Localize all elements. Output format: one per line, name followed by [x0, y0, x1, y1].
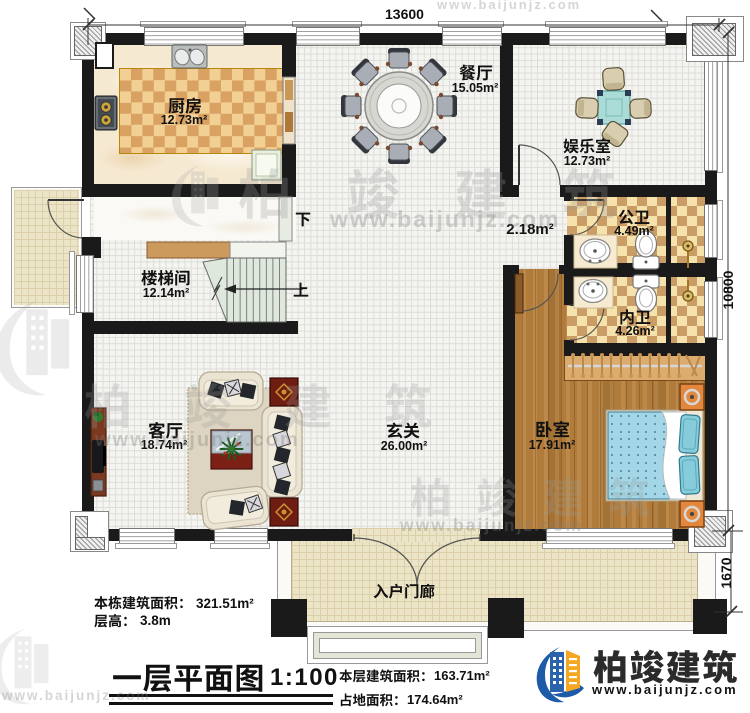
svg-text:1670: 1670 — [718, 557, 734, 588]
svg-text:10800: 10800 — [720, 270, 736, 309]
